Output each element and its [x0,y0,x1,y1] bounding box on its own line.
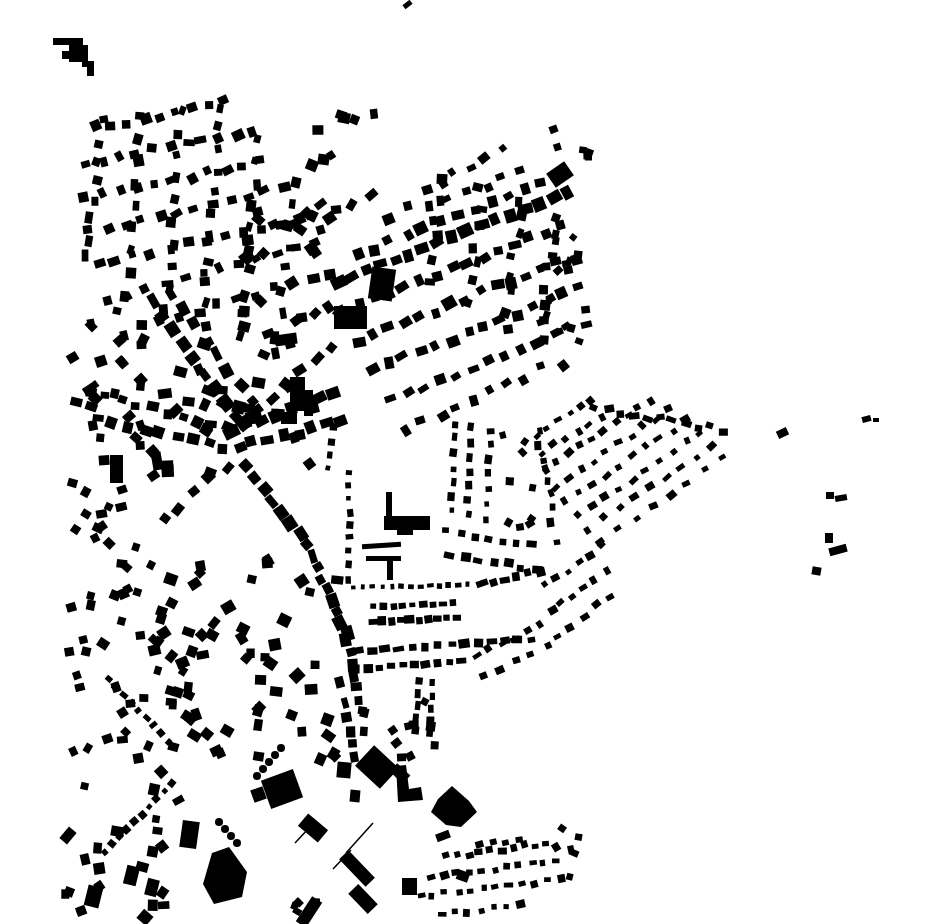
building-footprint [452,421,459,428]
building-footprint [402,386,415,398]
building-footprint [355,745,399,789]
building-footprint [380,321,395,333]
building-footprint [386,492,392,516]
building-footprint [381,212,395,226]
building-footprint [473,256,482,268]
building-footprint [585,151,592,160]
building-footprint [116,184,127,196]
building-footprint [578,464,587,473]
building-footprint [149,720,158,729]
building-footprint [138,283,149,295]
building-footprint [154,113,165,124]
building-footprint [434,641,442,649]
building-footprint [90,533,101,544]
building-footprint [718,454,726,461]
building-footprint [271,347,281,360]
building-footprint [114,150,125,162]
building-footprint [463,496,471,504]
building-footprint [346,521,354,529]
building-footprint [305,587,316,597]
building-footprint [433,659,442,668]
building-footprint [484,454,493,464]
building-footprint [436,174,447,185]
building-footprint [435,830,451,842]
building-footprint [603,566,612,575]
building-footprint [409,602,415,607]
building-footprint [438,912,447,917]
building-footprint [835,494,848,502]
building-footprint [432,230,443,240]
building-footprint [93,862,106,875]
building-footprint [100,391,109,399]
building-footprint [187,728,203,743]
building-footprint [644,481,655,492]
building-footprint [584,550,596,561]
building-footprint [362,542,401,550]
building-footprint [96,637,110,651]
building-footprint [615,486,623,493]
building-footprint [217,444,227,454]
building-footprint [467,275,477,286]
building-footprint [568,593,577,601]
building-footprint [361,584,365,589]
building-footprint [101,848,109,856]
building-footprint [370,109,379,120]
building-footprint [217,386,228,395]
building-footprint [451,466,457,472]
building-footprint [583,526,592,535]
building-footprint [390,584,394,590]
building-footprint [334,306,367,329]
building-footprint [408,584,414,589]
building-footprint [474,639,483,648]
building-footprint [309,307,322,320]
building-footprint [137,810,147,820]
building-footprint [290,377,305,411]
building-footprint [150,180,158,189]
building-footprint [414,241,430,255]
building-footprint [345,576,351,584]
building-footprint [641,441,650,450]
building-footprint [706,440,717,451]
building-footprint [653,434,663,443]
map-canvas [0,0,930,924]
building-footprint [466,510,473,518]
building-footprint [119,690,129,699]
building-footprint [573,510,582,519]
building-footprint [390,254,403,266]
building-footprint [379,644,391,653]
building-footprint [116,484,128,494]
building-footprint [93,258,106,269]
building-footprint [348,884,378,914]
building-footprint [547,439,558,449]
building-footprint [392,645,404,652]
building-footprint [573,250,582,258]
building-footprint [429,216,437,226]
building-footprint [381,585,385,589]
building-footprint [495,172,505,181]
building-footprint [553,539,560,545]
building-footprint [131,402,140,410]
building-footprint [529,860,537,865]
building-footprint [280,262,290,270]
building-footprint [132,587,142,597]
building-footprint [255,675,266,685]
building-footprint [94,354,108,368]
landmark-building-footprint [203,847,247,904]
building-footprint [354,696,362,706]
building-footprint [53,38,83,45]
building-footprint [173,130,182,139]
building-footprint [116,559,127,568]
building-footprint [548,252,558,259]
building-footprint [553,265,564,276]
building-footprint [499,431,507,439]
building-footprint [376,665,384,672]
building-footprint [169,701,177,710]
building-footprint [449,599,456,606]
building-footprint [458,638,470,649]
building-footprint [613,524,622,532]
building-footprint [132,154,144,168]
building-footprint [363,664,373,673]
building-footprint [503,324,514,334]
building-footprint [351,585,356,589]
building-footprint [173,365,188,378]
building-footprint [66,351,80,364]
building-footprint [346,470,353,475]
building-footprint [172,432,184,442]
building-footprint [107,839,117,849]
building-footprint [418,584,424,588]
building-footprint [266,392,281,406]
storage-tank-dot [271,751,279,759]
building-footprint [186,172,199,185]
building-footprint [538,450,546,458]
building-footprint [74,682,85,692]
building-footprint [329,423,337,431]
building-footprint [200,727,215,741]
building-footprint [132,133,144,146]
building-footprint [134,707,142,715]
building-footprint [107,256,121,268]
building-footprint [379,603,387,610]
railway-line [346,823,373,853]
building-footprint [146,803,153,810]
building-footprint [394,280,410,294]
building-footprint [132,201,139,211]
building-footprint [550,573,561,583]
building-footprint [670,427,678,435]
building-footprint [655,457,663,465]
building-footprint [175,655,190,670]
building-footprint [461,552,472,562]
building-footprint [572,282,583,292]
building-footprint [483,516,489,523]
storage-tank-dot [233,839,241,847]
building-footprint [517,565,524,572]
building-footprint [591,459,598,466]
building-footprint [156,728,166,738]
building-footprint [456,222,475,240]
building-footprint [597,426,608,437]
building-footprint [632,403,641,412]
building-footprint [526,540,537,548]
building-footprint [458,529,466,537]
building-footprint [472,557,482,564]
building-footprint [503,863,510,870]
building-footprint [387,560,393,580]
building-footprint [437,409,451,422]
building-footprint [633,515,641,523]
building-footprint [81,646,92,657]
building-footprint [503,558,514,568]
building-footprint [627,450,637,460]
building-footprint [345,560,352,568]
building-footprint [304,390,313,416]
building-footprint [584,421,593,430]
building-footprint [105,121,116,130]
building-footprint [491,278,506,290]
building-footprint [578,583,588,592]
building-footprint [239,306,250,317]
building-footprint [397,529,413,535]
building-footprint [253,751,265,761]
building-footprint [449,448,458,457]
building-footprint [451,209,465,221]
building-footprint [387,663,395,669]
building-footprint [492,867,499,874]
building-footprint [529,484,537,492]
building-footprint [350,664,359,673]
building-footprint [339,632,352,647]
building-footprint [123,865,140,887]
building-footprint [207,199,219,209]
building-footprint [520,437,529,447]
building-footprint [315,574,327,586]
building-footprint [175,336,192,354]
scattered-buildings-layer [61,109,594,924]
building-footprint [135,631,145,640]
building-footprint [488,212,501,226]
building-footprint [86,591,95,600]
building-footprint [184,350,201,366]
building-footprint [425,201,434,212]
building-footprint [130,179,138,191]
building-footprint [101,733,113,744]
storage-tank-dot [277,744,285,752]
building-footprint [364,188,378,202]
building-footprint [825,533,833,543]
building-footprint [205,101,213,109]
building-footprint [503,191,515,202]
building-footprint [465,481,472,490]
building-footprint [231,128,246,142]
building-footprint [226,195,237,205]
building-footprint [425,721,436,732]
building-footprint [488,440,494,447]
building-footprint [305,684,318,695]
building-footprint [477,321,488,332]
building-footprint [616,503,625,512]
building-footprint [565,568,572,575]
building-footprint [157,388,172,399]
building-footprint [136,320,147,330]
building-footprint [585,396,595,406]
building-footprint [534,177,546,187]
building-footprint [317,153,330,165]
building-footprint [482,885,487,891]
building-footprint [612,417,622,427]
building-footprint [99,156,108,167]
building-footprint [322,582,335,596]
building-footprint [205,628,220,642]
building-footprint [75,905,87,917]
building-footprint [158,901,170,909]
building-footprint [514,861,521,868]
building-footprint [72,670,82,680]
building-footprint [662,473,672,483]
building-footprint [467,422,474,431]
building-footprint [427,255,437,266]
building-footprint [447,260,461,273]
building-footprint [503,904,508,909]
building-footprint [546,298,552,304]
building-footprint [429,679,435,686]
building-footprint [78,635,88,644]
building-footprint [550,503,556,510]
building-footprint [575,558,584,566]
building-footprint [588,575,597,585]
building-footprint [563,473,574,483]
building-footprint [143,740,154,752]
building-footprint [553,142,562,151]
railway-line [295,828,309,843]
building-footprint [421,184,433,196]
building-footprint [341,712,353,723]
building-footprint [245,222,253,232]
building-footprint [552,858,560,863]
building-footprint [270,686,283,697]
building-footprint [430,741,438,750]
building-footprint [445,582,451,588]
building-footprint [110,825,125,837]
building-footprint [569,233,578,242]
building-footprint [194,308,206,317]
building-footprint [261,769,303,809]
building-footprint [91,197,98,206]
building-footprint [262,558,273,569]
building-footprint [506,252,515,260]
building-footprint [183,236,195,247]
building-footprint [614,463,622,471]
building-footprint [110,455,123,483]
building-footprint [151,451,164,470]
building-footprint [539,285,548,295]
building-footprint [484,501,489,507]
building-footprint [477,868,485,874]
building-footprint [419,600,428,608]
building-footprint [503,208,518,224]
building-footprint [311,661,320,669]
building-footprint [384,356,395,369]
building-footprint [234,377,250,393]
building-footprint [350,682,362,691]
building-footprint [705,421,714,429]
building-footprint [527,637,535,644]
building-footprint [336,761,351,778]
building-footprint [501,839,509,846]
building-footprint [482,354,495,367]
building-footprint [296,312,308,323]
building-footprint [345,534,353,540]
building-footprint [281,412,297,424]
building-footprint [544,641,552,649]
building-footprint [80,782,89,791]
building-footprint [167,778,177,788]
building-footprint [446,659,453,665]
building-footprint [187,205,198,214]
building-footprint [180,273,192,283]
building-footprint [220,231,231,241]
building-footprint [412,220,429,236]
building-footprint [491,883,499,889]
building-footprint [166,216,177,227]
building-footprint [152,815,160,824]
building-footprint [466,163,477,172]
building-footprint [278,181,292,193]
building-footprint [260,435,274,446]
building-footprint [368,619,378,625]
building-footprint [449,403,460,413]
building-footprint [182,397,195,407]
building-footprint [187,485,200,498]
building-footprint [103,223,116,235]
building-footprint [110,681,121,693]
building-footprint [325,465,331,471]
building-footprint [320,712,335,727]
building-footprint [512,572,521,582]
building-footprint [439,870,450,880]
building-footprint [257,225,266,234]
building-footprint [541,580,549,588]
building-footprint [428,893,434,900]
building-footprint [163,320,181,338]
building-footprint [236,330,245,342]
building-footprint [222,461,235,475]
building-footprint [539,335,549,345]
building-footprint [366,328,378,341]
building-footprint [204,437,216,448]
building-footprint [201,321,212,332]
building-footprint [553,416,562,424]
building-footprint [370,603,376,608]
building-footprint [505,477,514,485]
building-footprint [430,693,435,700]
building-footprint [468,394,479,406]
building-footprint [135,214,145,224]
building-footprint [80,853,91,866]
building-footprint [200,269,207,277]
building-footprint [398,603,406,610]
building-footprint [542,425,550,432]
building-footprint [548,124,558,134]
building-footprint [563,447,575,459]
building-footprint [346,726,356,737]
storage-tank-dot [215,818,223,826]
building-footprint [433,373,447,386]
